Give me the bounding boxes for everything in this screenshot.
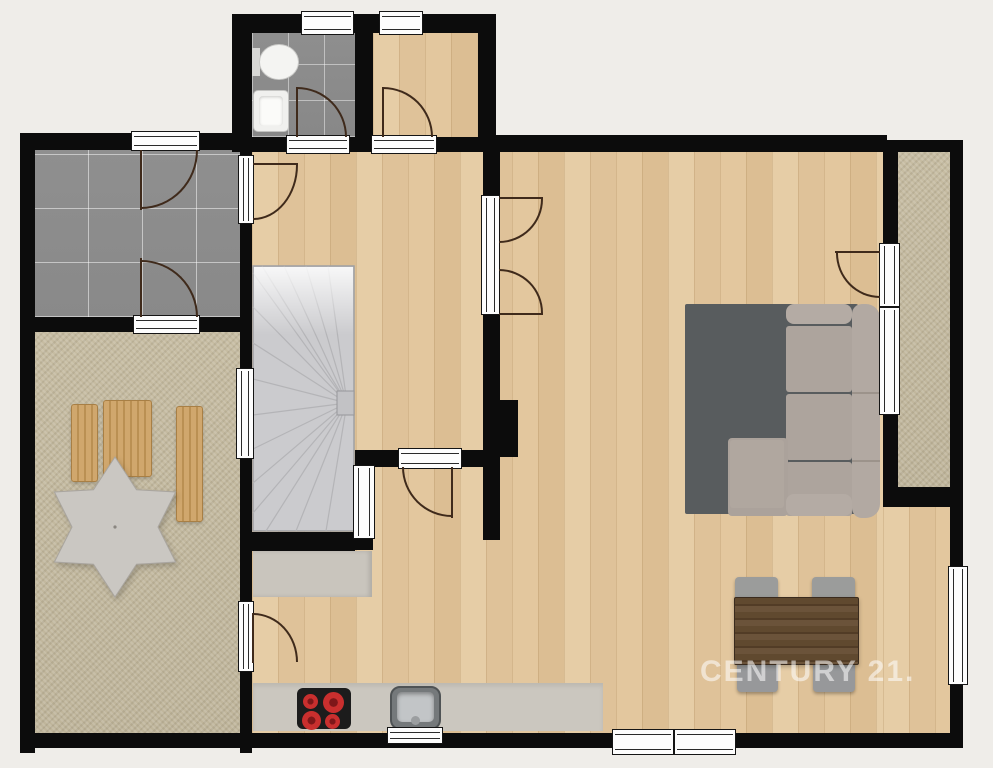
wall bbox=[883, 487, 963, 507]
toilet-bowl bbox=[259, 44, 299, 80]
window-glazing bbox=[134, 136, 197, 146]
window-glazing bbox=[615, 734, 671, 750]
door-threshold bbox=[238, 155, 254, 224]
wall bbox=[252, 137, 288, 152]
kitchen-sink-faucet bbox=[411, 716, 420, 725]
burner bbox=[325, 714, 340, 729]
door-leaf bbox=[499, 197, 543, 199]
door-threshold bbox=[371, 135, 437, 154]
wall bbox=[483, 457, 500, 540]
door-leaf bbox=[253, 163, 298, 165]
door-threshold bbox=[879, 243, 900, 307]
sofa-backrest bbox=[852, 304, 880, 518]
window-glazing bbox=[401, 453, 459, 464]
wall bbox=[435, 137, 478, 152]
window-glazing bbox=[304, 16, 351, 30]
window-glazing bbox=[289, 140, 347, 149]
door-threshold bbox=[286, 135, 350, 154]
window bbox=[879, 307, 900, 415]
wall bbox=[483, 152, 500, 197]
window-glazing bbox=[136, 320, 197, 329]
door-threshold bbox=[133, 315, 200, 334]
wall bbox=[478, 135, 887, 152]
window-glazing bbox=[884, 310, 895, 412]
wall bbox=[20, 733, 612, 748]
floor-plan: CENTURY 21. bbox=[0, 0, 993, 768]
sofa-chaise-cushion bbox=[730, 440, 784, 508]
window-glazing bbox=[884, 246, 895, 304]
door-leaf bbox=[382, 87, 384, 137]
window-glazing bbox=[241, 371, 249, 456]
door-leaf bbox=[140, 150, 142, 210]
door-threshold bbox=[353, 465, 375, 539]
window-glazing bbox=[243, 604, 249, 669]
sofa-seat bbox=[786, 394, 852, 460]
wall bbox=[240, 532, 355, 551]
window-glazing bbox=[382, 16, 420, 30]
window bbox=[612, 729, 674, 755]
sofa-seat bbox=[786, 326, 852, 392]
parasol bbox=[45, 455, 185, 599]
window-glazing bbox=[953, 569, 963, 682]
window-glazing bbox=[374, 140, 434, 149]
wall bbox=[198, 317, 240, 332]
wall bbox=[232, 14, 252, 152]
window bbox=[387, 727, 443, 744]
window-glazing bbox=[390, 732, 440, 739]
entry-floor bbox=[34, 150, 240, 317]
sofa-divider bbox=[852, 460, 880, 462]
wall bbox=[198, 133, 232, 150]
door-threshold bbox=[131, 131, 200, 151]
wall bbox=[240, 222, 252, 370]
burner bbox=[302, 711, 321, 730]
wall bbox=[883, 150, 898, 245]
sofa-armrest-front bbox=[786, 494, 852, 516]
door-threshold bbox=[398, 448, 462, 469]
door-leaf bbox=[835, 251, 880, 253]
window bbox=[301, 11, 354, 35]
balcony-floor bbox=[898, 150, 950, 487]
wall bbox=[483, 400, 518, 457]
wall bbox=[20, 133, 133, 150]
window-glazing bbox=[243, 158, 249, 221]
door-leaf bbox=[252, 613, 254, 663]
wall bbox=[232, 14, 496, 33]
window bbox=[948, 566, 968, 685]
window-glazing bbox=[358, 468, 370, 536]
wall bbox=[240, 133, 252, 157]
window bbox=[236, 368, 254, 459]
wall bbox=[20, 133, 35, 753]
wall bbox=[950, 683, 963, 748]
living-area-floor-east bbox=[883, 507, 952, 733]
wall bbox=[736, 733, 963, 748]
bathroom-sink-basin bbox=[259, 96, 283, 126]
watermark: CENTURY 21. bbox=[700, 652, 915, 692]
door-leaf bbox=[140, 258, 142, 317]
door-threshold bbox=[481, 195, 500, 315]
burner bbox=[323, 692, 344, 713]
sofa-divider bbox=[852, 392, 880, 394]
kitchen-cabinet bbox=[253, 551, 372, 597]
wall bbox=[478, 14, 496, 152]
staircase bbox=[252, 265, 355, 532]
door-leaf bbox=[451, 467, 453, 518]
window-glazing bbox=[486, 198, 495, 312]
wall bbox=[483, 313, 500, 400]
wall bbox=[240, 457, 252, 603]
wall bbox=[20, 317, 135, 332]
sofa-armrest-top bbox=[786, 304, 852, 324]
door-leaf bbox=[499, 313, 543, 315]
window bbox=[379, 11, 423, 35]
window bbox=[674, 729, 736, 755]
door-leaf bbox=[296, 87, 298, 137]
wall bbox=[460, 450, 487, 467]
burner bbox=[303, 694, 318, 709]
window-glazing bbox=[677, 734, 733, 750]
